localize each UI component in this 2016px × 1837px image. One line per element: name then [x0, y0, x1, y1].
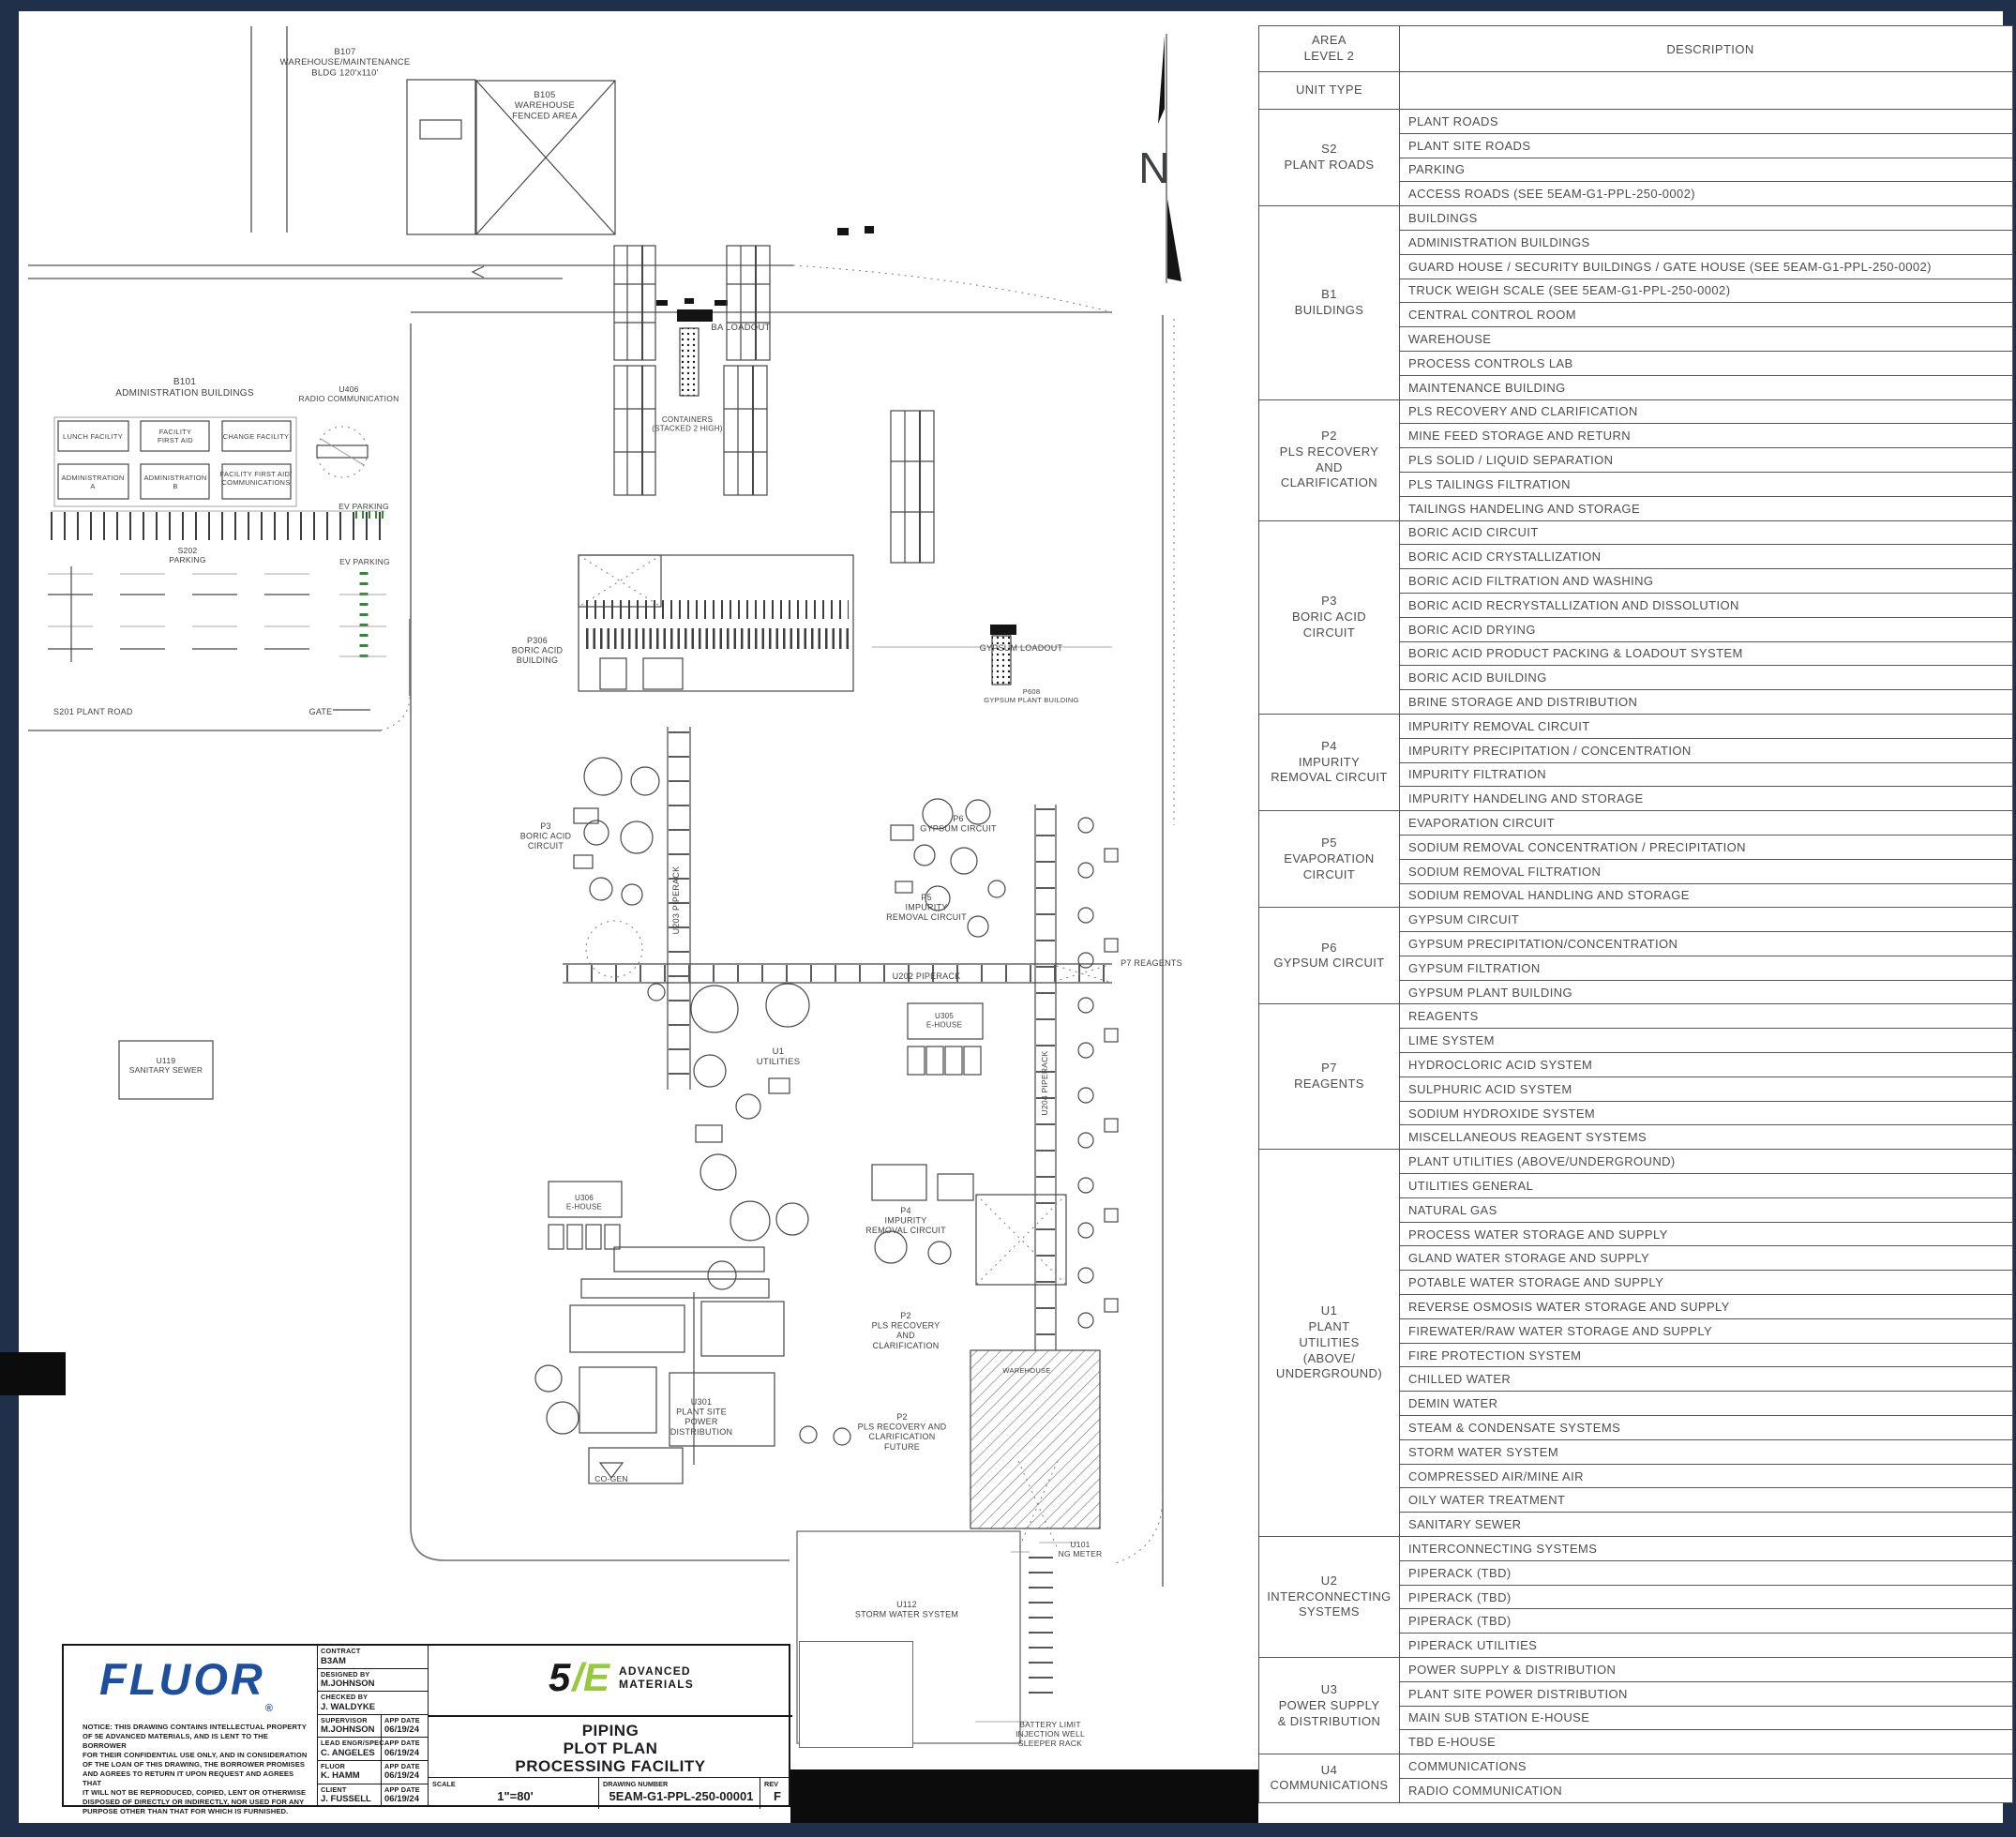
- legend-desc-cell: PIPERACK UTILITIES: [1400, 1634, 2013, 1658]
- legend-unit-cell: P4 IMPURITY REMOVAL CIRCUIT: [1259, 714, 1400, 810]
- legend-desc-cell: STEAM & CONDENSATE SYSTEMS: [1400, 1416, 2013, 1440]
- legend-desc-cell: PLANT SITE POWER DISTRIBUTION: [1400, 1681, 2013, 1706]
- legend-desc-cell: LIME SYSTEM: [1400, 1029, 2013, 1053]
- plan-label: S201 PLANT ROAD: [53, 707, 133, 716]
- legend-header-row: AREA LEVEL 2 DESCRIPTION: [1259, 26, 2013, 72]
- field-fluor-approver: FLUOR K. HAMM APP DATE06/19/24: [318, 1761, 428, 1784]
- radio-communication-tower: [317, 427, 368, 477]
- legend-desc-cell: OILY WATER TREATMENT: [1400, 1488, 2013, 1513]
- legend-row: P5 EVAPORATION CIRCUITEVAPORATION CIRCUI…: [1259, 811, 2013, 836]
- plan-label: EV PARKING: [339, 557, 390, 566]
- legend-desc-cell: PLANT UTILITIES (ABOVE/UNDERGROUND): [1400, 1150, 2013, 1174]
- plan-label: WAREHOUSE: [1002, 1366, 1050, 1375]
- plan-label: U305E-HOUSE: [926, 1012, 962, 1029]
- legend-desc-cell: GLAND WATER STORAGE AND SUPPLY: [1400, 1246, 2013, 1271]
- legend-desc-cell: COMMUNICATIONS: [1400, 1754, 2013, 1779]
- legend-row: P2 PLS RECOVERY AND CLARIFICATIONPLS REC…: [1259, 399, 2013, 424]
- legend-header-area: AREA LEVEL 2: [1259, 26, 1400, 72]
- scale-cell: SCALE 1"=80': [429, 1778, 599, 1809]
- warehouse-future-area: [970, 1350, 1100, 1528]
- ehouse-u306: [549, 1182, 622, 1249]
- rev-value: F: [764, 1789, 790, 1803]
- legend-desc-cell: PLS TAILINGS FILTRATION: [1400, 472, 2013, 496]
- plan-label: CO-GEN: [594, 1474, 628, 1483]
- fluor-logo: FLUOR®: [99, 1653, 273, 1714]
- legend-table-body: S2 PLANT ROADSPLANT ROADSPLANT SITE ROAD…: [1259, 110, 2013, 1803]
- legend-desc-cell: HYDROCLORIC ACID SYSTEM: [1400, 1053, 2013, 1077]
- field-label: DESIGNED BY: [321, 1670, 428, 1679]
- legend-desc-cell: MINE FEED STORAGE AND RETURN: [1400, 424, 2013, 448]
- legend-unit-cell: U1 PLANT UTILITIES (ABOVE/ UNDERGROUND): [1259, 1150, 1400, 1537]
- legend-desc-cell: SODIUM REMOVAL CONCENTRATION / PRECIPITA…: [1400, 835, 2013, 859]
- legend-desc-cell: SODIUM REMOVAL FILTRATION: [1400, 859, 2013, 883]
- legend-desc-cell: PARKING: [1400, 158, 2013, 182]
- legend-desc-cell: BORIC ACID CIRCUIT: [1400, 520, 2013, 545]
- legend-desc-cell: EVAPORATION CIRCUIT: [1400, 811, 2013, 836]
- legend-desc-cell: GYPSUM PLANT BUILDING: [1400, 980, 2013, 1004]
- 5e-advanced-materials-logo: 5/E ADVANCEDMATERIALS: [549, 1655, 694, 1700]
- title-line: PROCESSING FACILITY: [429, 1757, 792, 1775]
- field-app-date: APP DATE06/19/24: [381, 1761, 428, 1784]
- field-label: CONTRACT: [321, 1647, 428, 1655]
- bottom-black-band: [790, 1769, 1258, 1823]
- plan-label: P306BORIC ACIDBUILDING: [512, 636, 564, 665]
- plan-label: ADMINISTRATIONB: [143, 474, 206, 490]
- legend-row: P6 GYPSUM CIRCUITGYPSUM CIRCUIT: [1259, 908, 2013, 932]
- legend-desc-cell: IMPURITY REMOVAL CIRCUIT: [1400, 714, 2013, 738]
- legend-desc-cell: FIRE PROTECTION SYSTEM: [1400, 1343, 2013, 1367]
- plan-label: U119SANITARY SEWER: [129, 1056, 203, 1075]
- plan-label: B101ADMINISTRATION BUILDINGS: [115, 377, 254, 399]
- legend-desc-cell: DEMIN WATER: [1400, 1392, 2013, 1416]
- warehouse-maintenance-building: [407, 80, 615, 234]
- field-app-date: APP DATE06/19/24: [381, 1738, 428, 1760]
- legend-unit-cell: P5 EVAPORATION CIRCUIT: [1259, 811, 1400, 908]
- plan-label: BATTERY LIMITINJECTION WELLSLEEPER RACK: [1016, 1720, 1085, 1748]
- field-label: APP DATE: [384, 1785, 428, 1794]
- piperack-u202: [563, 964, 1112, 983]
- field-value: 06/19/24: [384, 1794, 428, 1804]
- legend-desc-cell: POWER SUPPLY & DISTRIBUTION: [1400, 1658, 2013, 1682]
- legend-desc-cell: REVERSE OSMOSIS WATER STORAGE AND SUPPLY: [1400, 1295, 2013, 1319]
- legend-desc-cell: MAIN SUB STATION E-HOUSE: [1400, 1706, 2013, 1730]
- boric-acid-building: [579, 555, 853, 691]
- legend-desc-cell: BORIC ACID RECRYSTALLIZATION AND DISSOLU…: [1400, 593, 2013, 617]
- legend-desc-cell: ADMINISTRATION BUILDINGS: [1400, 230, 2013, 254]
- field-value: 06/19/24: [384, 1770, 428, 1781]
- legend-desc-cell: GUARD HOUSE / SECURITY BUILDINGS / GATE …: [1400, 254, 2013, 279]
- plan-label: U203 PIPERACK: [671, 866, 681, 935]
- legend-desc-cell: BORIC ACID PRODUCT PACKING & LOADOUT SYS…: [1400, 641, 2013, 666]
- legend-desc-cell: MISCELLANEOUS REAGENT SYSTEMS: [1400, 1125, 2013, 1150]
- title-line: PLOT PLAN: [429, 1739, 792, 1757]
- field-label: APP DATE: [384, 1762, 428, 1770]
- plan-label: P3BORIC ACIDCIRCUIT: [520, 821, 572, 851]
- plan-label: P6GYPSUM CIRCUIT: [920, 814, 997, 834]
- legend-desc-cell: PLS RECOVERY AND CLARIFICATION: [1400, 399, 2013, 424]
- legend-desc-cell: TRUCK WEIGH SCALE (SEE 5EAM-G1-PPL-250-0…: [1400, 279, 2013, 303]
- legend-desc-cell: STORM WATER SYSTEM: [1400, 1439, 2013, 1464]
- legend-desc-cell: BORIC ACID FILTRATION AND WASHING: [1400, 569, 2013, 594]
- title-block: FLUOR® NOTICE: THIS DRAWING CONTAINS INT…: [62, 1644, 790, 1807]
- plan-label: U406RADIO COMMUNICATION: [298, 384, 399, 403]
- legend-desc-cell: REAGENTS: [1400, 1004, 2013, 1029]
- plan-label: N: [1138, 143, 1169, 192]
- plan-label: B107WAREHOUSE/MAINTENANCEBLDG 120'x110': [280, 47, 411, 78]
- field-designed-by: DESIGNED BY M.JOHNSON: [318, 1669, 428, 1693]
- field-client: CLIENT J. FUSSELL APP DATE06/19/24: [318, 1784, 428, 1808]
- legend-row: P7 REAGENTSREAGENTS: [1259, 1004, 2013, 1029]
- legend-desc-cell: PIPERACK (TBD): [1400, 1609, 2013, 1634]
- scale-label: SCALE: [432, 1780, 598, 1788]
- field-value: M.JOHNSON: [321, 1679, 428, 1689]
- power-distribution-equipment: [535, 1247, 850, 1483]
- legend-desc-cell: FIREWATER/RAW WATER STORAGE AND SUPPLY: [1400, 1318, 2013, 1343]
- legend-desc-cell: BORIC ACID CRYSTALLIZATION: [1400, 545, 2013, 569]
- legend-header-description: DESCRIPTION: [1400, 26, 2013, 72]
- plan-label: CHANGE FACILITY: [223, 432, 289, 441]
- container-racks: [614, 246, 934, 563]
- legend-desc-cell: GYPSUM CIRCUIT: [1400, 908, 2013, 932]
- plan-label: P608GYPSUM PLANT BUILDING: [984, 687, 1078, 704]
- title-line: PIPING: [429, 1722, 792, 1739]
- plan-label: EV PARKING: [339, 502, 389, 511]
- plan-label: P2PLS RECOVERY ANDCLARIFICATIONFUTURE: [858, 1412, 947, 1452]
- legend-desc-cell: PLS SOLID / LIQUID SEPARATION: [1400, 448, 2013, 473]
- legend-desc-cell: PLANT SITE ROADS: [1400, 133, 2013, 158]
- drawing-number-cell: DRAWING NUMBER 5EAM-G1-PPL-250-00001: [599, 1778, 760, 1809]
- legend-header-unit-type: UNIT TYPE: [1259, 72, 1400, 110]
- field-label: APP DATE: [384, 1716, 428, 1724]
- field-checked-by: CHECKED BY J. WALDYKE: [318, 1692, 428, 1715]
- plan-label: GYPSUM LOADOUT: [980, 643, 1063, 653]
- legend-desc-cell: UTILITIES GENERAL: [1400, 1174, 2013, 1198]
- legend-desc-cell: SANITARY SEWER: [1400, 1513, 2013, 1537]
- plan-label: P2PLS RECOVERYANDCLARIFICATION: [872, 1311, 940, 1350]
- legend-row: P4 IMPURITY REMOVAL CIRCUITIMPURITY REMO…: [1259, 714, 2013, 738]
- legend-desc-cell: CHILLED WATER: [1400, 1367, 2013, 1392]
- legend-unit-cell: P6 GYPSUM CIRCUIT: [1259, 908, 1400, 1004]
- legend-desc-cell: GYPSUM PRECIPITATION/CONCENTRATION: [1400, 932, 2013, 956]
- field-lead-engr: LEAD ENGR/SPEC. C. ANGELES APP DATE06/19…: [318, 1738, 428, 1761]
- legend-desc-cell: SULPHURIC ACID SYSTEM: [1400, 1077, 2013, 1101]
- plan-label: BA LOADOUT: [711, 323, 770, 333]
- legend-row: U4 COMMUNICATIONSCOMMUNICATIONS: [1259, 1754, 2013, 1779]
- notice-text: NOTICE: THIS DRAWING CONTAINS INTELLECTU…: [83, 1723, 311, 1816]
- legend-desc-cell: SODIUM HYDROXIDE SYSTEM: [1400, 1101, 2013, 1125]
- legend-unit-cell: U4 COMMUNICATIONS: [1259, 1754, 1400, 1803]
- plan-label: CONTAINERS(STACKED 2 HIGH): [652, 415, 723, 432]
- gypsum-loadout-spur: [990, 625, 1016, 685]
- legend-desc-cell: TAILINGS HANDELING AND STORAGE: [1400, 496, 2013, 520]
- field-value: B3AM: [321, 1656, 428, 1666]
- plan-label: U202 PIPERACK: [893, 971, 961, 981]
- plan-label: S202PARKING: [169, 546, 205, 565]
- field-supervisor: SUPERVISOR M.JOHNSON APP DATE06/19/24: [318, 1715, 428, 1739]
- field-contract: CONTRACT B3AM: [318, 1646, 428, 1669]
- legend-header-row: UNIT TYPE: [1259, 72, 2013, 110]
- legend-desc-cell: GYPSUM FILTRATION: [1400, 956, 2013, 980]
- plan-label: P4IMPURITYREMOVAL CIRCUIT: [865, 1206, 946, 1235]
- legend-desc-cell: MAINTENANCE BUILDING: [1400, 375, 2013, 399]
- legend-unit-cell: P7 REAGENTS: [1259, 1004, 1400, 1150]
- legend-desc-cell: IMPURITY FILTRATION: [1400, 762, 2013, 787]
- legend-desc-cell: TBD E-HOUSE: [1400, 1730, 2013, 1754]
- rev-cell: REV F: [760, 1778, 790, 1809]
- legend-desc-cell: INTERCONNECTING SYSTEMS: [1400, 1537, 2013, 1561]
- legend-desc-cell: PROCESS CONTROLS LAB: [1400, 351, 2013, 375]
- legend-desc-cell: PIPERACK (TBD): [1400, 1560, 2013, 1585]
- plot-plan: B107WAREHOUSE/MAINTENANCEBLDG 120'x110'B…: [19, 11, 1258, 1823]
- revision-box: [799, 1641, 913, 1748]
- legend-unit-cell: B1 BUILDINGS: [1259, 206, 1400, 399]
- plan-label: U1UTILITIES: [757, 1046, 801, 1067]
- plan-label: LUNCH FACILITY: [63, 432, 123, 441]
- field-value: J. WALDYKE: [321, 1702, 428, 1712]
- title-block-fluor-section: FLUOR® NOTICE: THIS DRAWING CONTAINS INT…: [64, 1646, 318, 1805]
- field-label: CHECKED BY: [321, 1693, 428, 1701]
- logo-wordmark: ADVANCEDMATERIALS: [619, 1664, 694, 1691]
- title-block-center: 5/E ADVANCEDMATERIALS PIPING PLOT PLAN P…: [429, 1646, 792, 1805]
- plan-label: GATE: [309, 707, 333, 716]
- drawing-number-value: 5EAM-G1-PPL-250-00001: [603, 1789, 760, 1803]
- legend-desc-cell: IMPURITY PRECIPITATION / CONCENTRATION: [1400, 738, 2013, 762]
- plan-label: U301PLANT SITEPOWERDISTRIBUTION: [670, 1397, 733, 1437]
- legend-desc-cell: PROCESS WATER STORAGE AND SUPPLY: [1400, 1222, 2013, 1246]
- legend-row: B1 BUILDINGSBUILDINGS: [1259, 206, 2013, 231]
- legend-desc-cell: NATURAL GAS: [1400, 1197, 2013, 1222]
- plan-label: FACILITY FIRST AID/COMMUNICATIONS: [220, 470, 293, 487]
- registered-mark-icon: ®: [265, 1703, 273, 1714]
- legend-desc-cell: SODIUM REMOVAL HANDLING AND STORAGE: [1400, 883, 2013, 908]
- field-app-date: APP DATE06/19/24: [381, 1715, 428, 1738]
- legend-desc-cell: PLANT ROADS: [1400, 110, 2013, 134]
- utilities-equipment: [691, 984, 809, 1289]
- legend-desc-cell: BRINE STORAGE AND DISTRIBUTION: [1400, 690, 2013, 715]
- legend-desc-cell: PIPERACK (TBD): [1400, 1585, 2013, 1609]
- legend-desc-cell: BUILDINGS: [1400, 206, 2013, 231]
- legend-row: U1 PLANT UTILITIES (ABOVE/ UNDERGROUND)P…: [1259, 1150, 2013, 1174]
- field-label: APP DATE: [384, 1739, 428, 1747]
- legend-unit-cell: P2 PLS RECOVERY AND CLARIFICATION: [1259, 399, 1400, 520]
- parking-lot: [48, 566, 309, 662]
- drawing-title: PIPING PLOT PLAN PROCESSING FACILITY: [429, 1715, 792, 1777]
- legend-desc-cell: ACCESS ROADS (SEE 5EAM-G1-PPL-250-0002): [1400, 182, 2013, 206]
- plan-label: U306E-HOUSE: [566, 1194, 602, 1211]
- plan-label: U112STORM WATER SYSTEM: [855, 1600, 958, 1619]
- legend-row: U3 POWER SUPPLY & DISTRIBUTIONPOWER SUPP…: [1259, 1658, 2013, 1682]
- legend-desc-cell: COMPRESSED AIR/MINE AIR: [1400, 1464, 2013, 1488]
- plan-label: ADMINISTRATIONA: [61, 474, 124, 490]
- legend-unit-cell: S2 PLANT ROADS: [1259, 110, 1400, 206]
- legend-header-blank: [1400, 72, 2013, 110]
- plan-label: B105WAREHOUSEFENCED AREA: [512, 90, 578, 121]
- logo-5: 5: [549, 1655, 570, 1700]
- scale-value: 1"=80': [432, 1789, 598, 1803]
- legend-desc-cell: IMPURITY HANDELING AND STORAGE: [1400, 787, 2013, 811]
- legend-table: AREA LEVEL 2 DESCRIPTION UNIT TYPE S2 PL…: [1258, 25, 2013, 1803]
- field-value: 06/19/24: [384, 1724, 428, 1735]
- title-block-fields: CONTRACT B3AM DESIGNED BY M.JOHNSON CHEC…: [318, 1646, 429, 1805]
- drawing-canvas: B107WAREHOUSE/MAINTENANCEBLDG 120'x110'B…: [0, 0, 2016, 1837]
- legend-row: U2 INTERCONNECTING SYSTEMSINTERCONNECTIN…: [1259, 1537, 2013, 1561]
- plan-label: FACILITYFIRST AID: [158, 428, 193, 444]
- legend-unit-cell: U3 POWER SUPPLY & DISTRIBUTION: [1259, 1658, 1400, 1754]
- legend-unit-cell: U2 INTERCONNECTING SYSTEMS: [1259, 1537, 1400, 1658]
- logo-e: E: [583, 1655, 608, 1700]
- plan-label: P7 REAGENTS: [1121, 958, 1182, 968]
- plan-label: P5IMPURITYREMOVAL CIRCUIT: [886, 893, 967, 922]
- legend-desc-cell: BORIC ACID DRYING: [1400, 617, 2013, 641]
- legend-unit-cell: P3 BORIC ACID CIRCUIT: [1259, 520, 1400, 714]
- legend-desc-cell: CENTRAL CONTROL ROOM: [1400, 303, 2013, 327]
- field-app-date: APP DATE06/19/24: [381, 1784, 428, 1808]
- legend-row: S2 PLANT ROADSPLANT ROADS: [1259, 110, 2013, 134]
- legend-row: P3 BORIC ACID CIRCUITBORIC ACID CIRCUIT: [1259, 520, 2013, 545]
- plan-label: U204 PIPERACK: [1040, 1050, 1049, 1115]
- legend-desc-cell: RADIO COMMUNICATION: [1400, 1778, 2013, 1802]
- logo-slash: /: [572, 1655, 583, 1700]
- legend-desc-cell: POTABLE WATER STORAGE AND SUPPLY: [1400, 1271, 2013, 1295]
- rev-label: REV: [764, 1780, 790, 1788]
- legend-desc-cell: WAREHOUSE: [1400, 327, 2013, 352]
- drawing-number-label: DRAWING NUMBER: [603, 1780, 760, 1788]
- field-value: 06/19/24: [384, 1748, 428, 1758]
- sheet-edge-mark: [0, 1352, 66, 1395]
- ba-loadout-spur: [677, 309, 713, 396]
- legend-desc-cell: BORIC ACID BUILDING: [1400, 666, 2013, 690]
- title-block-bottom-row: SCALE 1"=80' DRAWING NUMBER 5EAM-G1-PPL-…: [429, 1777, 792, 1809]
